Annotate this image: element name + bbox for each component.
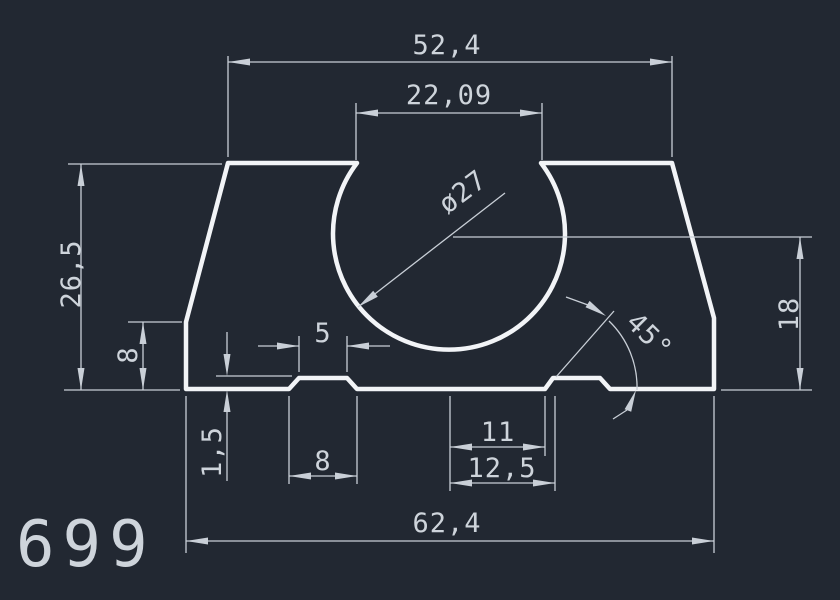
dim-label-left-groove-bottom-width: 8 xyxy=(314,446,331,477)
dim-label-opening-width: 22,09 xyxy=(406,80,492,111)
dim-label-right-groove-offset-near: 11 xyxy=(481,417,516,448)
arrowhead xyxy=(625,390,636,412)
dim-label-overall-height: 26,5 xyxy=(56,239,87,308)
arrowhead xyxy=(78,368,85,390)
dim-groove-depth: 1,5 xyxy=(197,332,292,481)
arrowhead xyxy=(186,538,208,545)
extension-line xyxy=(556,311,614,377)
dim-label-left-shoulder-height: 8 xyxy=(113,346,144,363)
dim-label-left-groove-top-width: 5 xyxy=(314,318,331,349)
dim-opening-width: 22,09 xyxy=(356,80,542,160)
dim-bore-center-height: 18 xyxy=(453,237,812,390)
dim-chamfer-angle: 45° xyxy=(556,297,678,419)
leader-line xyxy=(358,193,505,307)
cad-drawing-canvas[interactable]: 52,4 22,09 26,5 8 1,5 xyxy=(0,0,840,600)
leader-tail xyxy=(566,297,588,305)
arrowhead xyxy=(523,444,545,451)
dim-label-groove-depth: 1,5 xyxy=(197,426,228,478)
part-number: 699 xyxy=(16,508,156,582)
dim-left-shoulder-height: 8 xyxy=(113,322,182,390)
arrowhead xyxy=(140,322,147,344)
arrowhead xyxy=(797,368,804,390)
dim-label-top-width: 52,4 xyxy=(412,30,481,61)
cad-viewport[interactable]: 52,4 22,09 26,5 8 1,5 xyxy=(0,0,840,600)
arrowhead xyxy=(692,538,714,545)
arrowhead xyxy=(224,354,231,376)
arrowhead xyxy=(450,444,472,451)
dim-label-bore-diameter: ø27 xyxy=(433,164,493,220)
arrowhead xyxy=(520,110,542,117)
arrowhead xyxy=(289,473,311,480)
arrowhead xyxy=(78,164,85,186)
leader-tail xyxy=(613,410,627,419)
arrowhead xyxy=(586,301,607,316)
dim-label-right-groove-offset-far: 12,5 xyxy=(467,453,536,484)
dim-label-bore-center-height: 18 xyxy=(774,297,805,332)
arrowhead xyxy=(358,291,378,307)
arrowhead xyxy=(347,343,369,350)
arrowhead xyxy=(650,59,672,66)
arrowhead xyxy=(797,237,804,259)
arrowhead xyxy=(228,59,250,66)
dim-label-bottom-width: 62,4 xyxy=(412,508,481,539)
arrowhead xyxy=(224,390,231,412)
dim-left-groove-bottom-width: 8 xyxy=(289,396,357,484)
dim-left-groove-top-width: 5 xyxy=(258,318,390,372)
arrowhead xyxy=(356,110,378,117)
arrowhead xyxy=(277,343,299,350)
arrowhead xyxy=(335,473,357,480)
dim-bore-diameter: ø27 xyxy=(358,164,505,307)
dim-label-chamfer-angle: 45° xyxy=(620,307,679,366)
arrowhead xyxy=(140,368,147,390)
